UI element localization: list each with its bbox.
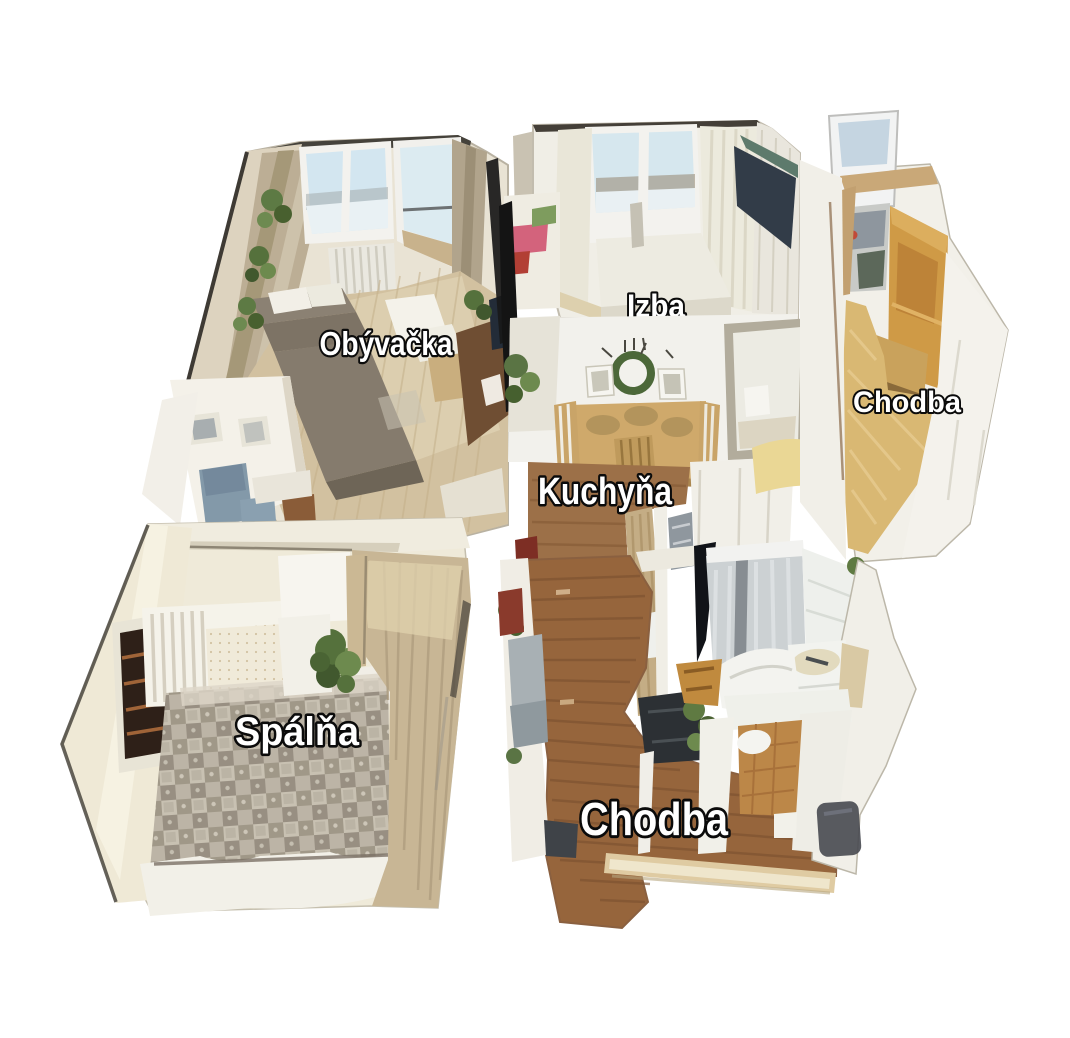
- svg-text:Kuchyňa: Kuchyňa: [538, 471, 673, 513]
- svg-text:Obývačka: Obývačka: [320, 325, 454, 362]
- svg-text:Chodba: Chodba: [853, 386, 961, 419]
- svg-text:Chodba: Chodba: [580, 793, 728, 845]
- svg-text:Spálňa: Spálňa: [235, 710, 360, 754]
